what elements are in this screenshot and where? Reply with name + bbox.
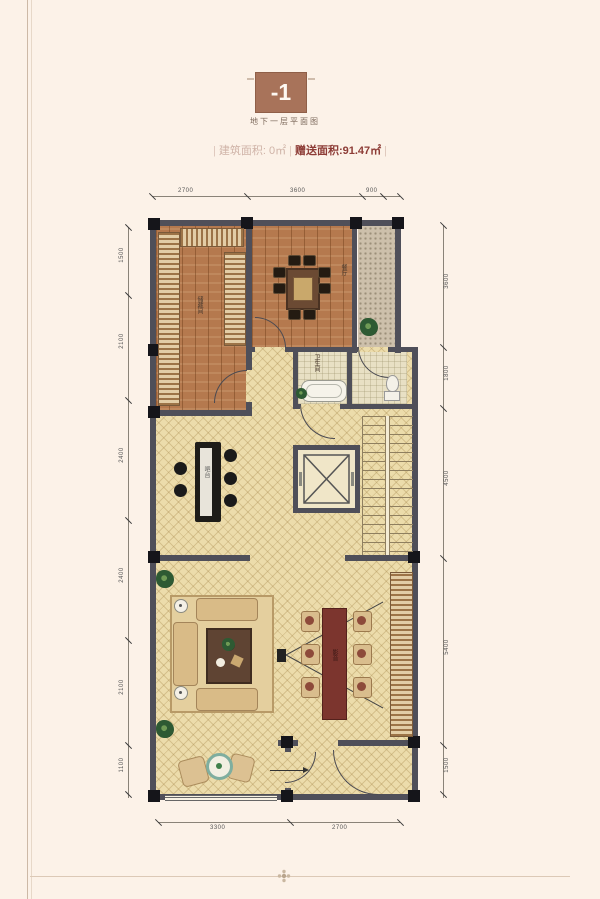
dim-line-right [443,225,444,798]
built-area-value: 0㎡ [269,145,286,157]
theater-chair [353,611,372,632]
elevator-shaft [293,445,360,513]
toilet-tank [384,391,400,401]
wall-dining-right [352,220,357,353]
column [392,217,404,229]
dining-chair [273,283,286,294]
theater-chair [353,644,372,665]
wall-storage-dining-a [246,220,252,370]
theater-chair [353,677,372,698]
dining-table-top [293,277,313,301]
footer-ornament-icon [276,868,292,884]
table-dish [216,658,225,667]
dim-value: 1500 [119,243,125,267]
wall-patio-b [338,740,412,746]
bathtub [301,380,347,402]
table-tray [230,654,243,667]
area-bracket-close: | [381,145,390,157]
column [350,217,362,229]
dining-chair [318,283,331,294]
table-plant [222,638,235,651]
window-band [165,795,277,801]
window-glass-line [165,797,277,798]
dim-value: 3600 [290,188,305,194]
dim-value: 2400 [119,443,125,467]
dining-chair [303,255,316,266]
column [281,736,293,748]
dim-value: 2700 [332,825,347,831]
plant [156,570,174,588]
dim-value: 2100 [119,675,125,699]
floor-badge-text: -1 [271,79,291,106]
wall-left-outer [150,220,156,800]
bar-stool [224,449,237,462]
dim-value: 2700 [178,188,193,194]
bar-table: 吧台 [195,442,221,522]
floor-lamp [174,686,188,700]
column [281,790,293,802]
area-bracket-mid: | [286,145,295,157]
dining-chair [318,267,331,278]
column [408,790,420,802]
dim-value: 1500 [444,753,450,777]
storage-shelving-top [180,228,244,247]
area-info-line: |建筑面积: 0㎡|赠送面积:91.47㎡| [120,142,480,158]
elevator-car-icon [298,450,355,508]
dim-value: 1100 [119,753,125,777]
gift-area-label: 赠送面积: [295,145,343,157]
column [148,790,160,802]
dim-line-left [128,227,129,798]
wall-storage-dining-b [246,402,252,410]
wall-top [150,220,402,226]
gift-area-value: 91.47㎡ [343,145,382,157]
dim-line-bottom [158,822,400,823]
sofa-top [196,598,258,621]
built-area-label: 建筑面积: [219,145,266,157]
dining-chair [303,309,316,320]
bar-stool [224,472,237,485]
theater-chair [301,644,320,665]
patio-table [206,753,233,780]
sofa-left [173,622,198,686]
dining-room-label: 餐厅 [340,264,346,276]
storage-room-label: 储藏间 [196,296,202,314]
wall-storage-bottom [150,410,252,416]
wall-hall-lower-a [150,555,250,561]
staircase-rail [385,416,390,555]
dim-value: 4500 [444,466,450,490]
floor-caption: 地下一层平面图 [195,116,375,127]
dim-value: 5400 [444,635,450,659]
storage-shelving-right [224,252,246,346]
toilet-bowl [386,375,399,392]
theater-chair [301,677,320,698]
footer-divider [30,876,570,877]
area-bracket-open: | [210,145,219,157]
plant [360,318,378,336]
storage-shelving-left [158,232,180,406]
wall-lightwell-right [395,220,401,353]
bar-stool [224,494,237,507]
column [148,218,160,230]
dim-value: 900 [366,188,378,194]
column [408,736,420,748]
page-left-rule [27,0,32,899]
theater-label: 影音 [331,649,337,661]
theater-table: 影音 [322,608,347,720]
dining-chair [273,267,286,278]
dining-chair [288,255,301,266]
bar-label: 吧台 [203,466,209,478]
bar-table-top: 吧台 [200,448,212,516]
column [148,551,160,563]
dim-value: 1800 [444,361,450,385]
plant [296,388,307,399]
floor-lamp [174,599,188,613]
bar-stool [174,462,187,475]
wall-hall-lower-b [345,555,412,561]
bathtub-inner [306,384,342,398]
dim-value: 3600 [444,269,450,293]
dining-chair [288,309,301,320]
wall-bath-toilet [347,347,352,409]
floor-badge: -1 [255,72,307,113]
bathroom-label: 卫生间 [313,354,319,372]
plant [156,720,174,738]
theater-chair [301,611,320,632]
entry-arrow [270,770,304,771]
coffee-table [206,628,252,684]
dim-value: 3300 [210,825,225,831]
bar-stool [174,484,187,497]
dining-table [286,268,320,310]
dim-value: 2100 [119,329,125,353]
floor-plan: 储藏间 餐厅 卫生间 吧台 [150,220,418,800]
theater-shelving [390,572,413,737]
column [148,406,160,418]
sofa-bottom [196,688,258,711]
projector [277,649,286,662]
dim-value: 2400 [119,563,125,587]
wall-bath-left [293,347,298,409]
